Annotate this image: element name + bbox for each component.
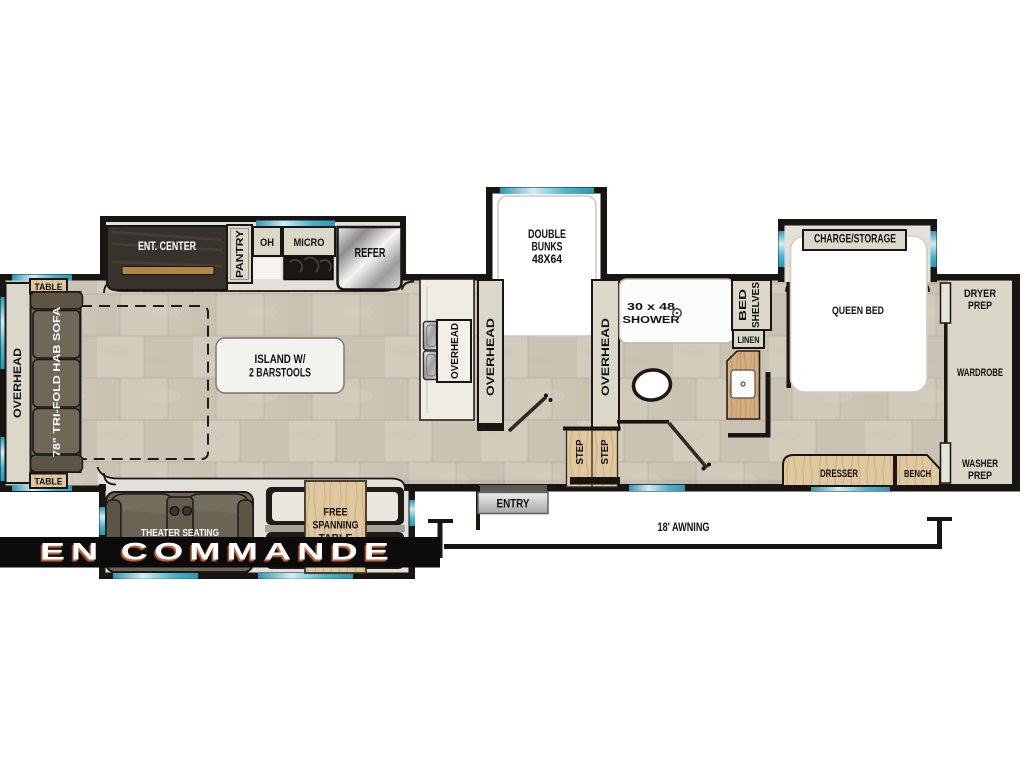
svg-text:ENTRY: ENTRY [497, 499, 530, 511]
svg-text:QUEEN BED: QUEEN BED [832, 305, 884, 317]
svg-text:OVERHEAD: OVERHEAD [485, 318, 497, 396]
svg-text:BENCH: BENCH [904, 468, 931, 480]
svg-text:30 x 48: 30 x 48 [627, 301, 675, 313]
svg-text:OVERHEAD: OVERHEAD [449, 323, 461, 379]
svg-text:EN COMMANDE: EN COMMANDE [40, 539, 395, 566]
svg-text:TABLE: TABLE [35, 477, 63, 487]
svg-text:PANTRY: PANTRY [235, 230, 246, 278]
svg-text:OVERHEAD: OVERHEAD [600, 318, 612, 396]
svg-text:DRESSER: DRESSER [820, 468, 858, 480]
svg-text:48X64: 48X64 [532, 252, 562, 266]
svg-text:STEP: STEP [600, 439, 611, 464]
svg-text:REFER: REFER [355, 246, 386, 260]
svg-text:ENT. CENTER: ENT. CENTER [138, 241, 197, 253]
svg-text:PREP: PREP [968, 300, 992, 312]
svg-text:DRYER: DRYER [964, 288, 996, 300]
svg-text:TABLE: TABLE [35, 282, 63, 292]
svg-text:BED: BED [737, 288, 749, 321]
svg-text:SPANNING: SPANNING [313, 520, 359, 532]
svg-text:OVERHEAD: OVERHEAD [12, 348, 24, 418]
svg-text:2 BARSTOOLS: 2 BARSTOOLS [249, 368, 311, 380]
svg-text:78" TRI-FOLD HAB SOFA: 78" TRI-FOLD HAB SOFA [51, 307, 63, 457]
svg-text:FREE: FREE [324, 507, 348, 519]
svg-text:WASHER: WASHER [962, 458, 998, 470]
svg-text:PREP: PREP [968, 470, 992, 482]
svg-text:MICRO: MICRO [294, 237, 325, 249]
svg-text:STEP: STEP [575, 439, 586, 464]
svg-text:18' AWNING: 18' AWNING [658, 520, 710, 534]
svg-text:LINEN: LINEN [738, 335, 760, 346]
svg-text:SHOWER: SHOWER [623, 314, 681, 326]
svg-text:CHARGE/STORAGE: CHARGE/STORAGE [814, 234, 896, 246]
svg-text:SHELVES: SHELVES [750, 282, 762, 328]
svg-text:ISLAND W/: ISLAND W/ [255, 354, 307, 366]
svg-text:OH: OH [260, 237, 274, 249]
svg-text:WARDROBE: WARDROBE [957, 367, 1003, 379]
